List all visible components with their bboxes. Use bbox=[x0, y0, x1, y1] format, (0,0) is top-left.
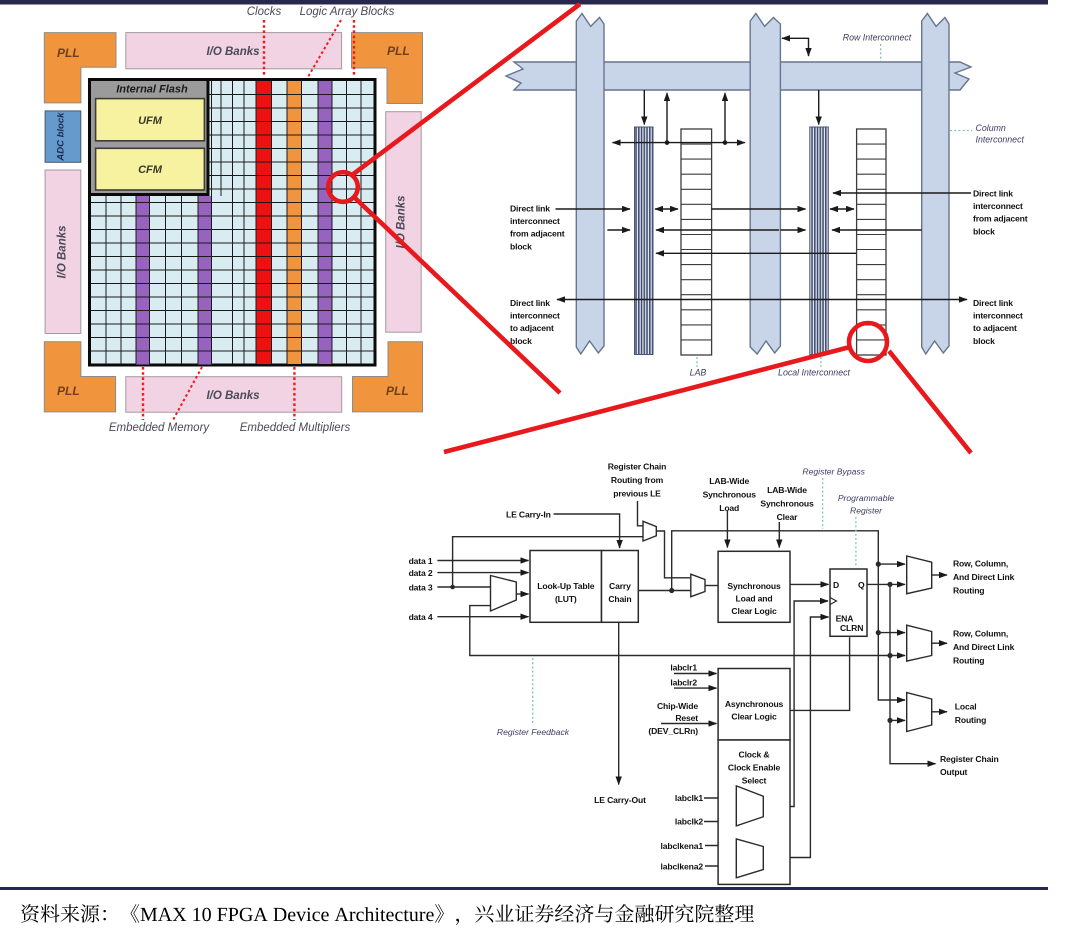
svg-text:interconnect: interconnect bbox=[510, 311, 560, 321]
svg-text:Synchronous: Synchronous bbox=[760, 499, 814, 509]
svg-text:Reset: Reset bbox=[675, 713, 698, 723]
svg-text:Register Feedback: Register Feedback bbox=[497, 727, 570, 737]
svg-text:Output: Output bbox=[940, 767, 968, 777]
svg-text:Q: Q bbox=[858, 580, 865, 590]
svg-text:I/O Banks: I/O Banks bbox=[57, 225, 69, 278]
svg-text:Clear Logic: Clear Logic bbox=[731, 712, 777, 722]
svg-text:PLL: PLL bbox=[386, 384, 409, 398]
svg-text:labclkena2: labclkena2 bbox=[661, 862, 704, 872]
svg-text:data 1: data 1 bbox=[409, 556, 433, 566]
svg-text:block: block bbox=[510, 336, 532, 346]
svg-text:LAB-Wide: LAB-Wide bbox=[709, 476, 749, 486]
svg-text:interconnect: interconnect bbox=[973, 201, 1023, 211]
svg-text:Direct link: Direct link bbox=[973, 298, 1013, 308]
svg-text:Column: Column bbox=[976, 123, 1006, 133]
svg-text:block: block bbox=[510, 241, 532, 251]
svg-text:ENA: ENA bbox=[836, 614, 854, 624]
svg-text:Direct link: Direct link bbox=[510, 203, 550, 213]
svg-text:Load: Load bbox=[719, 503, 739, 513]
svg-text:to adjacent: to adjacent bbox=[973, 323, 1017, 333]
svg-text:D: D bbox=[833, 580, 839, 590]
svg-text:UFM: UFM bbox=[138, 115, 163, 127]
svg-text:Chip-Wide: Chip-Wide bbox=[657, 701, 698, 711]
svg-text:to adjacent: to adjacent bbox=[510, 323, 554, 333]
svg-text:labclkena1: labclkena1 bbox=[661, 841, 704, 851]
svg-text:Asynchronous: Asynchronous bbox=[725, 699, 784, 709]
svg-text:Synchronous: Synchronous bbox=[727, 581, 781, 591]
svg-text:PLL: PLL bbox=[57, 46, 80, 60]
svg-text:Routing: Routing bbox=[953, 655, 984, 665]
svg-text:PLL: PLL bbox=[57, 384, 80, 398]
svg-text:Programmable: Programmable bbox=[838, 493, 895, 503]
svg-text:data 3: data 3 bbox=[409, 583, 433, 593]
svg-text:Look-Up Table: Look-Up Table bbox=[537, 581, 594, 591]
svg-text:Load and: Load and bbox=[736, 594, 773, 604]
svg-text:Register: Register bbox=[850, 506, 883, 516]
svg-text:Internal Flash: Internal Flash bbox=[116, 84, 188, 96]
svg-text:Row Interconnect: Row Interconnect bbox=[843, 33, 912, 43]
svg-text:data 2: data 2 bbox=[409, 568, 433, 578]
svg-text:Direct link: Direct link bbox=[510, 298, 550, 308]
svg-text:I/O Banks: I/O Banks bbox=[206, 390, 259, 402]
svg-text:CLRN: CLRN bbox=[840, 623, 863, 633]
svg-text:Direct link: Direct link bbox=[973, 188, 1013, 198]
svg-text:Select: Select bbox=[742, 776, 767, 786]
svg-text:LE Carry-Out: LE Carry-Out bbox=[594, 795, 646, 805]
svg-text:(DEV_CLRn): (DEV_CLRn) bbox=[648, 726, 698, 736]
svg-text:Logic Array Blocks: Logic Array Blocks bbox=[300, 6, 395, 18]
svg-text:Clear: Clear bbox=[777, 512, 799, 522]
svg-text:Embedded Memory: Embedded Memory bbox=[109, 422, 211, 434]
svg-text:Register Bypass: Register Bypass bbox=[802, 467, 865, 477]
svg-text:ADC block: ADC block bbox=[56, 112, 67, 162]
svg-text:Interconnect: Interconnect bbox=[976, 135, 1025, 145]
svg-text:(LUT): (LUT) bbox=[555, 594, 577, 604]
svg-text:Routing: Routing bbox=[955, 715, 986, 725]
svg-text:Clear Logic: Clear Logic bbox=[731, 606, 777, 616]
svg-text:from adjacent: from adjacent bbox=[510, 229, 565, 239]
svg-text:Register Chain: Register Chain bbox=[608, 462, 667, 472]
svg-text:Row, Column,: Row, Column, bbox=[953, 629, 1008, 639]
svg-text:data 4: data 4 bbox=[409, 612, 433, 622]
svg-text:I/O Banks: I/O Banks bbox=[206, 46, 259, 58]
svg-text:Synchronous: Synchronous bbox=[703, 490, 757, 500]
svg-text:LAB: LAB bbox=[690, 368, 707, 378]
svg-text:labclk2: labclk2 bbox=[675, 817, 703, 827]
svg-text:labclr2: labclr2 bbox=[670, 678, 697, 688]
svg-text:And Direct Link: And Direct Link bbox=[953, 642, 1015, 652]
svg-text:LE Carry-In: LE Carry-In bbox=[506, 510, 551, 520]
svg-text:PLL: PLL bbox=[387, 44, 410, 58]
svg-text:And Direct Link: And Direct Link bbox=[953, 572, 1015, 582]
svg-text:interconnect: interconnect bbox=[973, 311, 1023, 321]
svg-text:Row, Column,: Row, Column, bbox=[953, 559, 1008, 569]
svg-text:Local: Local bbox=[955, 702, 977, 712]
svg-text:Clock Enable: Clock Enable bbox=[728, 763, 781, 773]
svg-text:Embedded Multipliers: Embedded Multipliers bbox=[240, 422, 351, 434]
svg-text:Routing: Routing bbox=[953, 585, 984, 595]
svg-text:labclk1: labclk1 bbox=[675, 793, 703, 803]
svg-text:LAB-Wide: LAB-Wide bbox=[767, 485, 807, 495]
svg-text:Clocks: Clocks bbox=[247, 6, 282, 18]
svg-text:Clock &: Clock & bbox=[739, 750, 770, 760]
svg-text:block: block bbox=[973, 226, 995, 236]
svg-text:CFM: CFM bbox=[138, 164, 163, 176]
svg-text:from adjacent: from adjacent bbox=[973, 214, 1028, 224]
svg-text:Carry: Carry bbox=[609, 581, 631, 591]
svg-text:Local Interconnect: Local Interconnect bbox=[778, 368, 850, 378]
svg-text:interconnect: interconnect bbox=[510, 216, 560, 226]
svg-text:labclr1: labclr1 bbox=[670, 663, 697, 673]
svg-text:block: block bbox=[973, 336, 995, 346]
svg-text:Routing from: Routing from bbox=[611, 475, 664, 485]
svg-text:Chain: Chain bbox=[608, 594, 631, 604]
svg-text:Register Chain: Register Chain bbox=[940, 754, 999, 764]
svg-text:previous LE: previous LE bbox=[613, 489, 661, 499]
